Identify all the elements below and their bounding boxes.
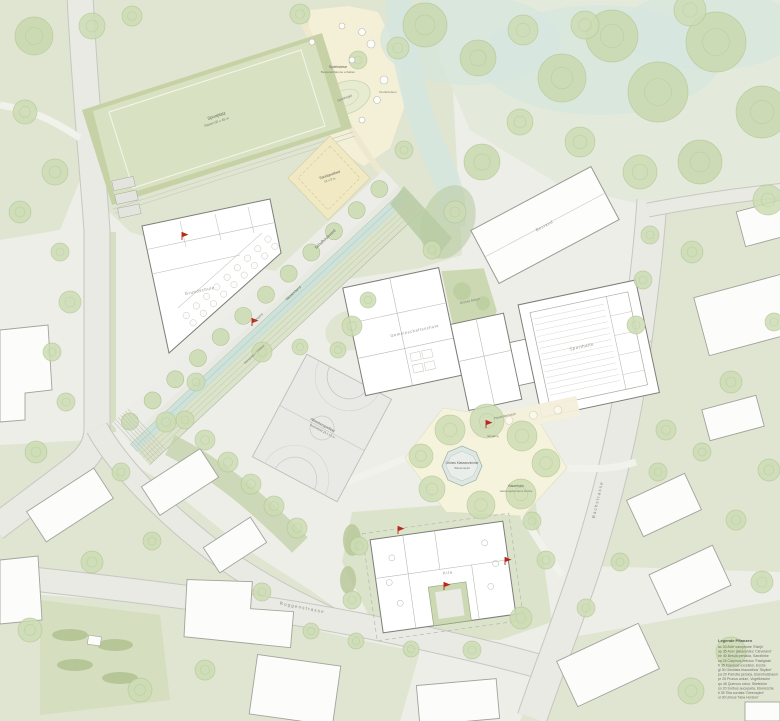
meadow-sublabel: Bestandsbäume erhalten <box>321 70 356 74</box>
site-plan: Sportplatz Rasen 90 x 45 m Sandspielfeld… <box>0 0 780 721</box>
table <box>231 281 237 287</box>
tree <box>419 476 445 502</box>
legend-entry: ul 30 Ulmus 'New Horizon' <box>718 696 759 700</box>
tree <box>15 17 53 55</box>
tree <box>360 292 376 308</box>
tree <box>649 463 667 481</box>
tree <box>678 140 722 184</box>
table <box>265 236 271 242</box>
tree <box>464 144 500 180</box>
legend-entry: gl 30 Gleditsia triacanthos 'Skyline' <box>718 668 772 672</box>
legend-entry: be 40 Betula pendula, Sandbirke <box>718 654 769 658</box>
tree <box>460 40 496 76</box>
garden-hut <box>87 635 101 646</box>
tree <box>435 415 465 445</box>
tree <box>681 241 703 263</box>
pavilion-sublabel: Wasserspiel <box>454 466 470 470</box>
tree <box>537 551 555 569</box>
tree <box>42 159 68 185</box>
table <box>255 246 261 252</box>
tree <box>79 13 105 39</box>
tree <box>59 291 81 313</box>
tree <box>508 15 538 45</box>
table <box>241 272 247 278</box>
entrance-label: Eingang <box>487 434 498 438</box>
table <box>262 253 268 259</box>
tree <box>350 537 368 555</box>
tree <box>565 127 595 157</box>
tree <box>187 373 205 391</box>
tree <box>628 62 688 122</box>
tree <box>571 11 599 39</box>
tree <box>343 591 361 609</box>
tree <box>403 3 447 47</box>
legend-entry: pr 25 Prunus avium, Vogelkirsche <box>718 677 770 681</box>
tree <box>18 618 42 642</box>
tree <box>156 412 176 432</box>
tree <box>264 496 284 516</box>
site-plan-canvas: Sportplatz Rasen 90 x 45 m Sandspielfeld… <box>0 0 780 721</box>
tree <box>195 430 215 450</box>
tree <box>13 100 37 124</box>
tree <box>9 201 31 223</box>
table <box>224 274 230 280</box>
legend-entry: pa 20 Parrotia persica, Eisenholzbaum <box>718 673 778 677</box>
table <box>200 310 206 316</box>
tree <box>507 421 537 451</box>
legend-title: Legende Pflanzen <box>718 638 753 643</box>
table <box>193 303 199 309</box>
tree <box>176 411 194 429</box>
table <box>210 301 216 307</box>
tree <box>532 449 560 477</box>
tree <box>342 316 362 336</box>
tree <box>330 342 346 358</box>
tree <box>720 371 742 393</box>
tree <box>403 641 419 657</box>
table <box>183 312 189 318</box>
tree <box>758 459 780 481</box>
tree <box>25 441 47 463</box>
table <box>221 291 227 297</box>
boulders-label: Kletterfelsen <box>379 90 396 94</box>
tree <box>641 226 659 244</box>
legend-entry: ti 35 Tilia cordata 'Greenspire' <box>718 691 764 695</box>
tree <box>463 641 481 659</box>
tree <box>726 510 746 530</box>
tree <box>253 583 271 601</box>
tree <box>678 678 704 704</box>
tree <box>51 243 69 261</box>
tree <box>444 201 466 223</box>
tree <box>507 109 533 135</box>
table <box>244 255 250 261</box>
tree <box>195 660 215 680</box>
tree <box>128 678 152 702</box>
tree <box>510 607 532 629</box>
tree <box>290 4 310 24</box>
legend-entry: ap 35 Acer platanoides 'Cleveland' <box>718 650 772 654</box>
tree <box>656 420 676 440</box>
tree <box>751 571 773 593</box>
allotment-gardens <box>40 600 170 715</box>
tree <box>693 443 711 461</box>
tree <box>765 313 780 331</box>
legend-entry: fr 35 Fraxinus excelsior, Esche <box>718 663 766 667</box>
tree <box>467 491 495 519</box>
tree <box>292 339 308 355</box>
tree <box>634 271 652 289</box>
sports-hall-building <box>518 280 659 417</box>
table <box>190 320 196 326</box>
tree <box>623 155 657 189</box>
legend-entry: ac 30 Acer campestre 'Elsrijk' <box>718 645 764 649</box>
meadow-label: Spielwiese <box>329 65 347 69</box>
grove-label: Baumhain <box>508 484 523 488</box>
tree <box>287 518 307 538</box>
tree <box>538 54 586 102</box>
tree <box>348 633 364 649</box>
tree <box>122 6 142 26</box>
tree <box>241 474 261 494</box>
table <box>272 243 278 249</box>
legend-entry: so 20 Sorbus aucuparia, Eberesche <box>718 686 774 690</box>
table <box>234 265 240 271</box>
tree <box>409 444 433 468</box>
legend-entry: qu 45 Quercus robur, Stieleiche <box>718 682 767 686</box>
tree <box>143 532 161 550</box>
tree <box>523 512 541 530</box>
table <box>203 293 209 299</box>
tree <box>423 241 441 259</box>
tree <box>387 37 409 59</box>
tree <box>577 599 595 617</box>
tree <box>303 623 319 639</box>
tree <box>81 551 103 573</box>
tree <box>218 452 238 472</box>
legend-entry: ca 25 Carpinus betulus 'Fastigiata' <box>718 659 772 663</box>
tree <box>43 343 61 361</box>
tree <box>627 316 645 334</box>
tree <box>112 463 130 481</box>
pavilion-label: Grünes Klassenzimmer <box>445 461 479 465</box>
table <box>251 262 257 268</box>
tree <box>57 393 75 411</box>
grove-sublabel: wassergebundene Decke <box>500 489 533 493</box>
tree <box>611 553 629 571</box>
tree <box>753 185 780 215</box>
tree <box>395 141 413 159</box>
